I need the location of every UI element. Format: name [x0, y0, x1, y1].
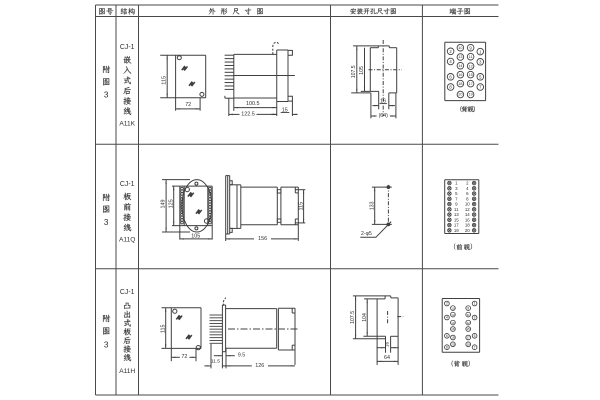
svg-text:5: 5 [474, 334, 476, 338]
svg-text:3: 3 [104, 341, 109, 350]
svg-text:125: 125 [168, 199, 174, 208]
svg-text:17: 17 [454, 223, 459, 228]
svg-text:100.5: 100.5 [246, 101, 260, 107]
svg-text:12: 12 [468, 64, 472, 68]
svg-text:12: 12 [465, 207, 470, 212]
svg-text:14: 14 [451, 321, 455, 325]
svg-text:16: 16 [451, 327, 455, 331]
svg-text:13: 13 [458, 55, 462, 59]
svg-text:A11Q: A11Q [119, 237, 135, 244]
svg-text:3: 3 [104, 91, 109, 100]
svg-text:107.5: 107.5 [351, 65, 357, 78]
svg-text:CJ-1: CJ-1 [120, 289, 135, 296]
svg-text:): ) [470, 243, 472, 250]
svg-text:12: 12 [467, 321, 471, 325]
svg-text:19: 19 [467, 343, 471, 347]
svg-text:105: 105 [359, 66, 365, 75]
svg-text:107.5: 107.5 [350, 311, 356, 324]
svg-text:13: 13 [451, 313, 455, 317]
svg-text:CJ-1: CJ-1 [120, 181, 135, 188]
svg-text:19: 19 [454, 228, 459, 233]
svg-text:11: 11 [469, 55, 473, 59]
svg-text:15: 15 [468, 73, 472, 77]
svg-text:156: 156 [258, 236, 267, 242]
svg-text:4: 4 [446, 316, 448, 320]
svg-text:2-φ5: 2-φ5 [361, 231, 372, 237]
svg-text:8: 8 [446, 345, 448, 349]
svg-text:149: 149 [161, 200, 167, 209]
svg-text:17: 17 [467, 336, 471, 340]
svg-text:18: 18 [458, 82, 462, 86]
svg-text:16: 16 [458, 73, 462, 77]
svg-text:): ) [468, 360, 470, 367]
svg-text:18: 18 [451, 336, 455, 340]
svg-text:15: 15 [467, 327, 471, 331]
svg-text:9.5: 9.5 [238, 353, 245, 359]
svg-text:115: 115 [160, 325, 166, 334]
svg-text:3: 3 [474, 316, 476, 320]
svg-text:20: 20 [458, 93, 462, 97]
svg-text:14: 14 [465, 212, 470, 217]
svg-text:126: 126 [255, 363, 264, 369]
svg-text:72: 72 [185, 102, 191, 108]
svg-text:17: 17 [468, 82, 472, 86]
svg-text:10: 10 [458, 46, 462, 50]
svg-text:1: 1 [474, 302, 476, 306]
svg-text:2: 2 [446, 302, 448, 306]
svg-text:11: 11 [467, 313, 470, 317]
svg-text:6: 6 [446, 334, 448, 338]
svg-text:9: 9 [467, 306, 469, 310]
svg-text:122.5: 122.5 [241, 111, 255, 117]
svg-text:16: 16 [385, 342, 391, 348]
svg-text:64: 64 [384, 355, 390, 361]
svg-text:105: 105 [191, 233, 200, 239]
svg-text:(64): (64) [379, 113, 388, 119]
svg-text:CJ-1: CJ-1 [120, 44, 135, 51]
svg-text:3: 3 [104, 218, 109, 227]
svg-text:11: 11 [454, 207, 459, 212]
svg-text:72: 72 [181, 354, 187, 360]
svg-text:19: 19 [468, 93, 472, 97]
svg-text:11.5: 11.5 [211, 358, 220, 364]
svg-text:20: 20 [465, 228, 470, 233]
svg-text:133: 133 [369, 201, 375, 210]
svg-text:104: 104 [362, 313, 368, 322]
svg-text:7: 7 [474, 345, 476, 349]
svg-text:10: 10 [451, 306, 455, 310]
svg-text:18: 18 [465, 223, 470, 228]
svg-text:): ) [473, 105, 475, 112]
svg-text:A11H: A11H [119, 368, 135, 375]
svg-text:115: 115 [161, 76, 167, 85]
svg-text:20: 20 [451, 343, 455, 347]
svg-text:A11K: A11K [119, 120, 135, 127]
svg-text:14: 14 [458, 64, 462, 68]
svg-text:115: 115 [299, 202, 305, 211]
svg-text:13: 13 [454, 212, 459, 217]
